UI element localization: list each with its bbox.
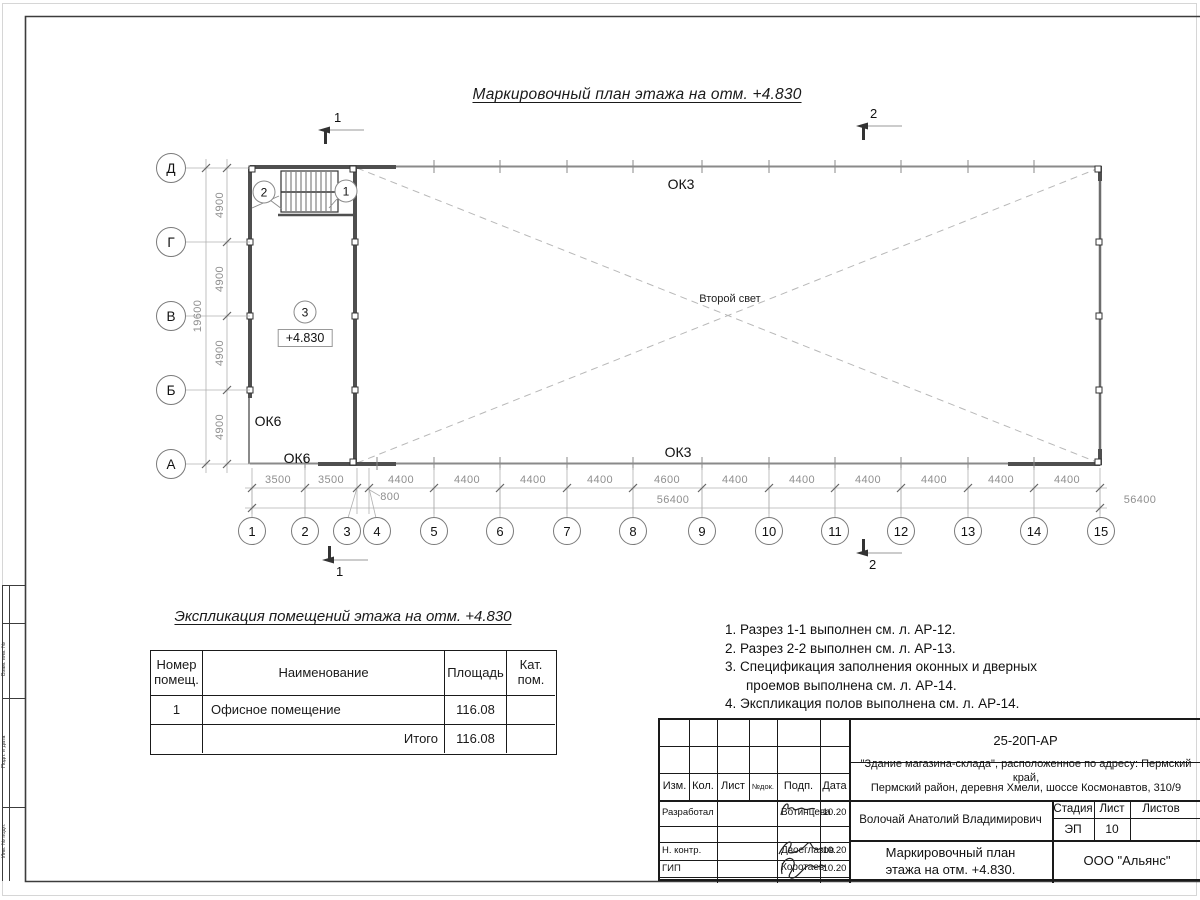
role-developer: Разработал bbox=[662, 800, 717, 826]
total-label: Итого bbox=[203, 725, 445, 753]
sheets-total-header: Листов bbox=[1130, 800, 1192, 818]
section-mark-2-top: 2 bbox=[870, 106, 877, 121]
axis-col-7: 7 bbox=[553, 517, 581, 545]
cell-total-category bbox=[507, 725, 555, 753]
dim-4400-9: 4400 bbox=[988, 474, 1014, 486]
void-cross-lines bbox=[357, 168, 1099, 463]
title-block: Изм. Кол. Лист №док. Подп. Дата Разработ… bbox=[658, 718, 1200, 881]
section-mark-1-top: 1 bbox=[334, 110, 341, 125]
developer-signature bbox=[778, 798, 818, 822]
axis-row-D: Д bbox=[156, 153, 186, 183]
axis-col-4: 4 bbox=[363, 517, 391, 545]
plan-title: Маркировочный план этажа на отм. +4.830 bbox=[437, 86, 837, 104]
rev-header-kol: Кол. bbox=[689, 773, 717, 800]
doc-number: 25-20П-АР bbox=[849, 720, 1200, 762]
stage-header: Стадия bbox=[1052, 800, 1094, 818]
project-description-line2: Пермский район, деревня Хмели, шоссе Кос… bbox=[852, 779, 1200, 798]
dim-4900-4: 4900 bbox=[214, 414, 226, 440]
dim-4400-10: 4400 bbox=[1054, 474, 1080, 486]
dim-4400-4: 4400 bbox=[587, 474, 613, 486]
cell-room-area: 116.08 bbox=[445, 696, 507, 725]
dim-19600-total: 19600 bbox=[192, 300, 204, 333]
window-label-ok3-top: ОК3 bbox=[668, 176, 695, 192]
dim-4900-1: 4900 bbox=[214, 192, 226, 218]
organization-name: ООО "Альянс" bbox=[1052, 840, 1200, 883]
dim-4900-3: 4900 bbox=[214, 340, 226, 366]
cell-room-number: 1 bbox=[151, 696, 203, 725]
axis-col-15: 15 bbox=[1087, 517, 1115, 545]
dim-800: 800 bbox=[380, 491, 400, 503]
explication-table: Номер помещ. Наименование Площадь Кат. п… bbox=[150, 650, 557, 755]
column-ticks bbox=[305, 160, 1034, 470]
stage-value: ЭП bbox=[1052, 818, 1094, 840]
stair-mark-2: 2 bbox=[253, 181, 276, 204]
rev-header-podp: Подп. bbox=[777, 773, 820, 800]
axis-col-3: 3 bbox=[333, 517, 361, 545]
axis-col-8: 8 bbox=[619, 517, 647, 545]
column-squares bbox=[247, 166, 1102, 465]
window-label-ok6-left: ОК6 bbox=[255, 413, 282, 429]
axis-col-12: 12 bbox=[887, 517, 915, 545]
sheet-number-value: 10 bbox=[1094, 818, 1130, 840]
dim-4400-3: 4400 bbox=[520, 474, 546, 486]
axis-row-A: А bbox=[156, 449, 186, 479]
dim-3500-2: 3500 bbox=[318, 474, 344, 486]
note-line-2: 2. Разрез 2-2 выполнен см. л. АР-13. bbox=[725, 640, 1125, 659]
explication-title: Экспликация помещений этажа на отм. +4.8… bbox=[168, 608, 518, 625]
room-number-mark: 3 bbox=[294, 301, 317, 324]
dim-4400-5: 4400 bbox=[722, 474, 748, 486]
side-stamp-vzam: Взам. инв. № bbox=[1, 646, 7, 676]
walls bbox=[249, 166, 1100, 465]
rev-header-ndok: №док. bbox=[749, 773, 777, 800]
axis-row-V: В bbox=[156, 301, 186, 331]
col-header-category: Кат. пом. bbox=[507, 651, 555, 696]
side-stamp-inv: Инв. № подл. bbox=[1, 828, 7, 858]
rev-header-izm: Изм. bbox=[660, 773, 689, 800]
stairs bbox=[281, 171, 338, 212]
axis-col-10: 10 bbox=[755, 517, 783, 545]
axis-row-G: Г bbox=[156, 227, 186, 257]
second-light-label: Второй свет bbox=[699, 293, 760, 305]
role-norm-control: Н. контр. bbox=[662, 842, 717, 860]
rev-header-list: Лист bbox=[717, 773, 749, 800]
col-header-name: Наименование bbox=[203, 651, 445, 696]
dim-4600: 4600 bbox=[654, 474, 680, 486]
section-mark-1-bottom: 1 bbox=[336, 564, 343, 579]
dim-4900-2: 4900 bbox=[214, 266, 226, 292]
total-area: 116.08 bbox=[445, 725, 507, 753]
section-marks bbox=[318, 123, 902, 564]
note-line-3b: проемов выполнена см. л. АР-14. bbox=[725, 677, 1125, 696]
dim-4400-1: 4400 bbox=[388, 474, 414, 486]
col-header-room-number: Номер помещ. bbox=[151, 651, 203, 696]
section-mark-2-bottom: 2 bbox=[869, 557, 876, 572]
axis-col-13: 13 bbox=[954, 517, 982, 545]
approver-name: Волочай Анатолий Владимирович bbox=[849, 800, 1052, 840]
axis-row-B: Б bbox=[156, 375, 186, 405]
notes-list: 1. Разрез 1-1 выполнен см. л. АР-12. 2. … bbox=[725, 621, 1125, 714]
dim-56400-total-2: 56400 bbox=[1124, 494, 1157, 506]
developer-date: 10.20 bbox=[820, 800, 849, 826]
dim-3500-1: 3500 bbox=[265, 474, 291, 486]
cell-room-name: Офисное помещение bbox=[203, 696, 445, 725]
rev-header-data: Дата bbox=[820, 773, 849, 800]
sheet-header: Лист bbox=[1094, 800, 1130, 818]
note-line-4: 4. Экспликация полов выполнена см. л. АР… bbox=[725, 695, 1125, 714]
stair-mark-1: 1 bbox=[335, 180, 358, 203]
col-header-area: Площадь bbox=[445, 651, 507, 696]
axis-col-14: 14 bbox=[1020, 517, 1048, 545]
axis-col-9: 9 bbox=[688, 517, 716, 545]
sheets-total-value bbox=[1130, 818, 1192, 840]
axis-col-6: 6 bbox=[486, 517, 514, 545]
side-stamp-podp: Подп. и дата bbox=[1, 738, 7, 768]
cell-total-empty bbox=[151, 725, 203, 753]
gip-signature bbox=[777, 852, 827, 880]
dim-56400-total: 56400 bbox=[657, 494, 690, 506]
note-line-3: 3. Спецификация заполнения оконных и две… bbox=[725, 658, 1125, 677]
dim-4400-2: 4400 bbox=[454, 474, 480, 486]
cell-room-category bbox=[507, 696, 555, 725]
window-label-ok6-bottom: ОК6 bbox=[284, 450, 311, 466]
table-row: 1 Офисное помещение 116.08 bbox=[151, 696, 556, 725]
elevation-mark: +4.830 bbox=[278, 329, 333, 347]
axis-col-1: 1 bbox=[238, 517, 266, 545]
dim-4400-8: 4400 bbox=[921, 474, 947, 486]
dim-4400-6: 4400 bbox=[789, 474, 815, 486]
role-gip: ГИП bbox=[662, 860, 717, 877]
sheet-title-line1: Маркировочный план bbox=[849, 844, 1052, 862]
axis-col-11: 11 bbox=[821, 517, 849, 545]
dim-4400-7: 4400 bbox=[855, 474, 881, 486]
axis-col-2: 2 bbox=[291, 517, 319, 545]
note-line-1: 1. Разрез 1-1 выполнен см. л. АР-12. bbox=[725, 621, 1125, 640]
axis-col-5: 5 bbox=[420, 517, 448, 545]
window-label-ok3-bottom: ОК3 bbox=[665, 444, 692, 460]
table-total-row: Итого 116.08 bbox=[151, 725, 556, 753]
drawing-sheet: Маркировочный план этажа на отм. +4.830 … bbox=[0, 0, 1200, 900]
sheet-title-line2: этажа на отм. +4.830. bbox=[849, 861, 1052, 879]
